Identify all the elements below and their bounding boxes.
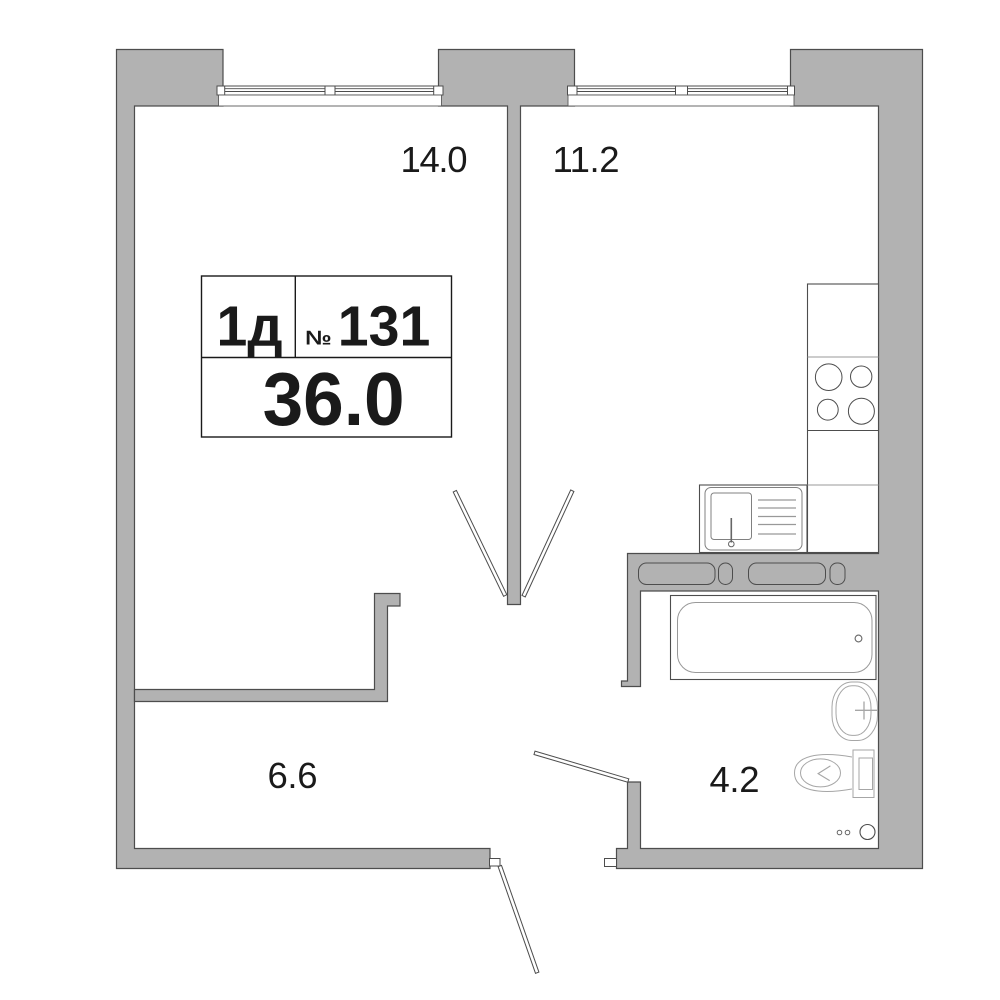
svg-text:11.2: 11.2: [553, 139, 620, 180]
svg-text:№: №: [305, 328, 332, 350]
svg-text:1д: 1д: [217, 295, 283, 358]
svg-text:4.2: 4.2: [710, 759, 760, 800]
svg-text:14.0: 14.0: [401, 139, 468, 180]
svg-text:131: 131: [338, 295, 431, 358]
svg-text:36.0: 36.0: [263, 357, 405, 441]
svg-text:6.6: 6.6: [268, 755, 318, 796]
